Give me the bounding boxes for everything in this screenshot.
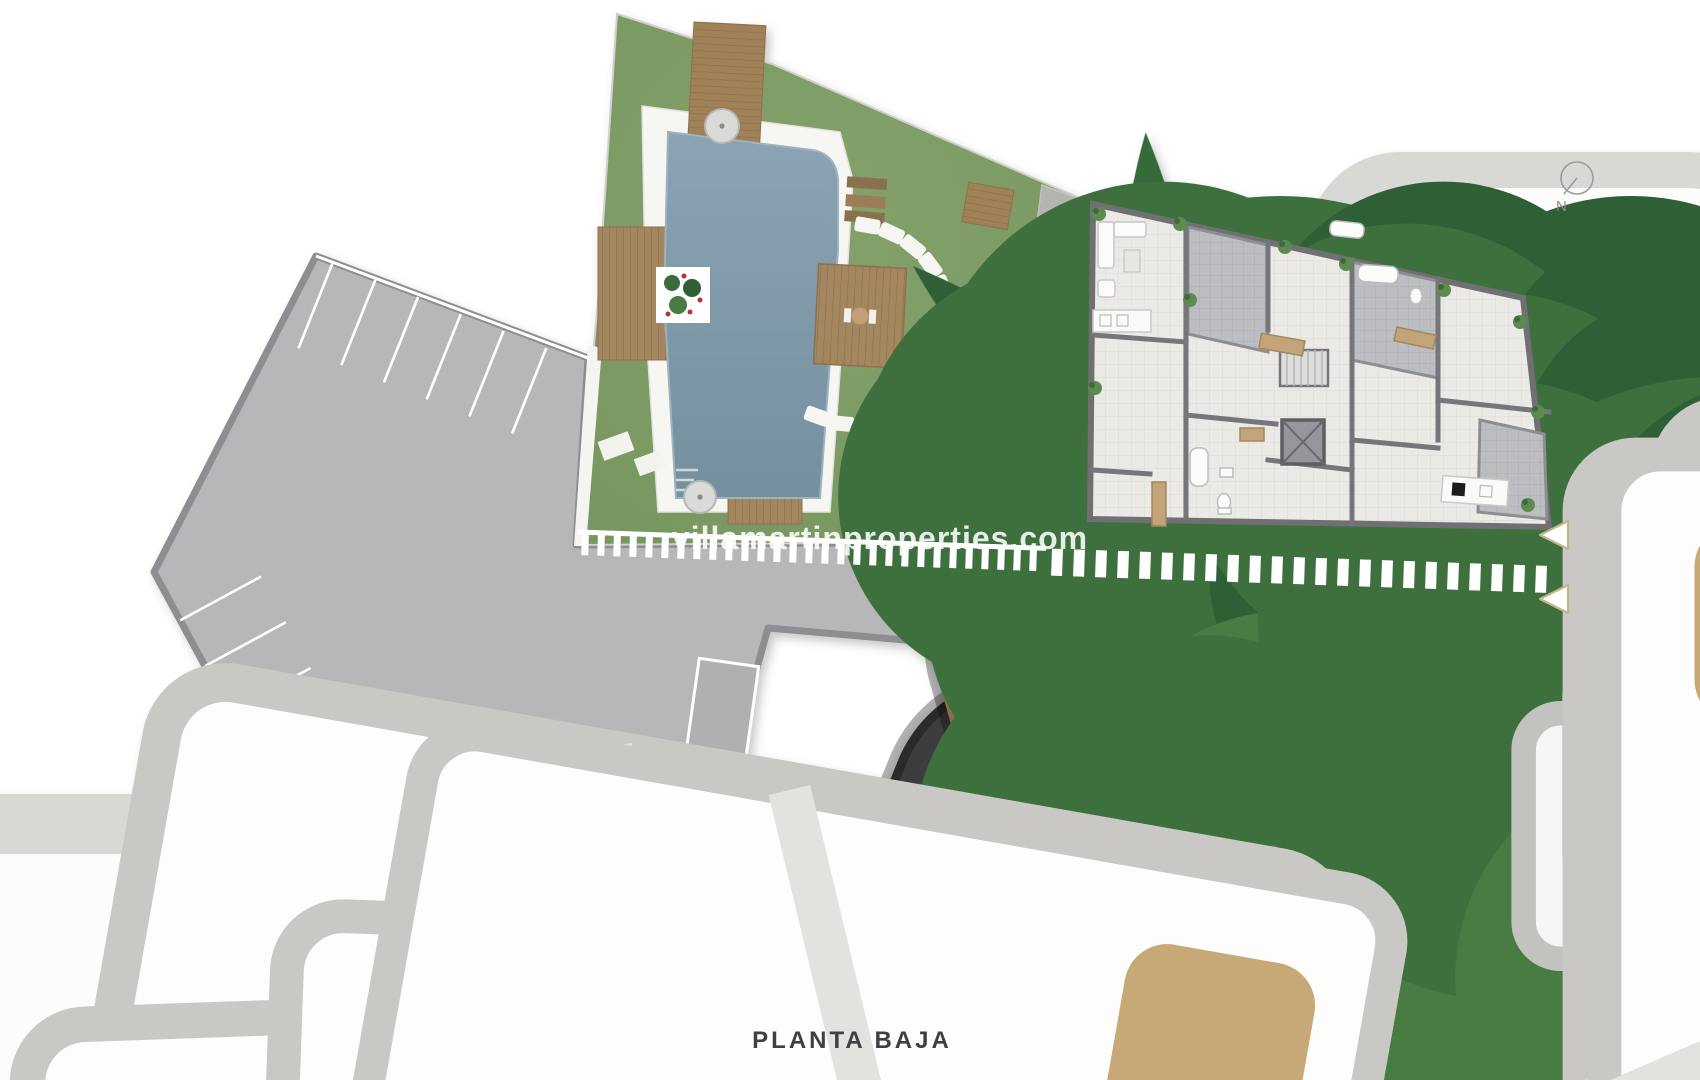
crosswalk-stripe <box>1117 551 1129 578</box>
compass-label: N <box>1556 198 1568 215</box>
potted-plant-icon <box>1089 382 1095 388</box>
crosswalk-stripe <box>1381 560 1393 587</box>
potted-plant-icon <box>1532 406 1538 412</box>
kitchen-counter-2 <box>1441 476 1509 507</box>
crosswalk-stripe <box>1447 562 1459 589</box>
planter-box <box>656 267 710 323</box>
fence-post <box>661 537 669 558</box>
fence-post <box>645 536 653 557</box>
coffee-table <box>1124 250 1140 272</box>
floor-plan-canvas: villamartinproperties.com N PLANTA BAJA <box>0 0 1700 1080</box>
bed <box>1605 455 1700 1080</box>
crosswalk-stripe <box>1161 552 1173 579</box>
fence-post <box>581 534 589 555</box>
crosswalk-stripe <box>1491 564 1503 591</box>
crosswalk-stripe <box>1271 556 1283 583</box>
crosswalk-stripe <box>1139 552 1151 579</box>
potted-plant-icon <box>1438 284 1444 290</box>
crosswalk-stripe <box>1095 550 1107 577</box>
fence-post <box>629 536 637 557</box>
potted-plant-icon <box>1174 218 1180 224</box>
crosswalk-stripe <box>1337 559 1349 586</box>
picnic-benches <box>844 176 887 224</box>
kitchen-counter <box>1093 310 1151 332</box>
watermark: villamartinproperties.com <box>672 520 1088 556</box>
crosswalk-stripe <box>1403 561 1415 588</box>
crosswalk-stripe <box>1227 555 1239 582</box>
fence-post <box>597 535 605 556</box>
crosswalk-stripe <box>1359 559 1371 586</box>
crosswalk-stripe <box>1315 558 1327 585</box>
site-group: villamartinproperties.com <box>0 14 1700 1080</box>
crosswalk-stripe <box>1425 562 1437 589</box>
potted-plant-icon <box>1184 294 1190 300</box>
crosswalk-stripe <box>1469 563 1481 590</box>
crosswalk-stripe <box>1513 565 1525 592</box>
crosswalk-stripe <box>1183 553 1195 580</box>
elevator-core <box>1282 420 1324 464</box>
potted-plant-icon <box>1093 208 1099 214</box>
site-plan-svg: villamartinproperties.com N PLANTA BAJA <box>0 0 1700 1080</box>
crosswalk-stripe <box>1535 566 1547 593</box>
page-title: PLANTA BAJA <box>752 1027 952 1054</box>
potted-plant-icon <box>1514 316 1520 322</box>
crosswalk-stripe <box>1249 556 1261 583</box>
potted-plant-icon <box>1340 258 1346 264</box>
terrace-1 <box>1188 227 1268 352</box>
stairs <box>1280 350 1328 386</box>
potted-plant-icon <box>1522 499 1528 505</box>
crosswalk-stripe <box>1205 554 1217 581</box>
fence-post <box>613 535 621 556</box>
crosswalk-stripe <box>1293 557 1305 584</box>
potted-plant-icon <box>1279 241 1285 247</box>
trellis <box>962 182 1014 229</box>
